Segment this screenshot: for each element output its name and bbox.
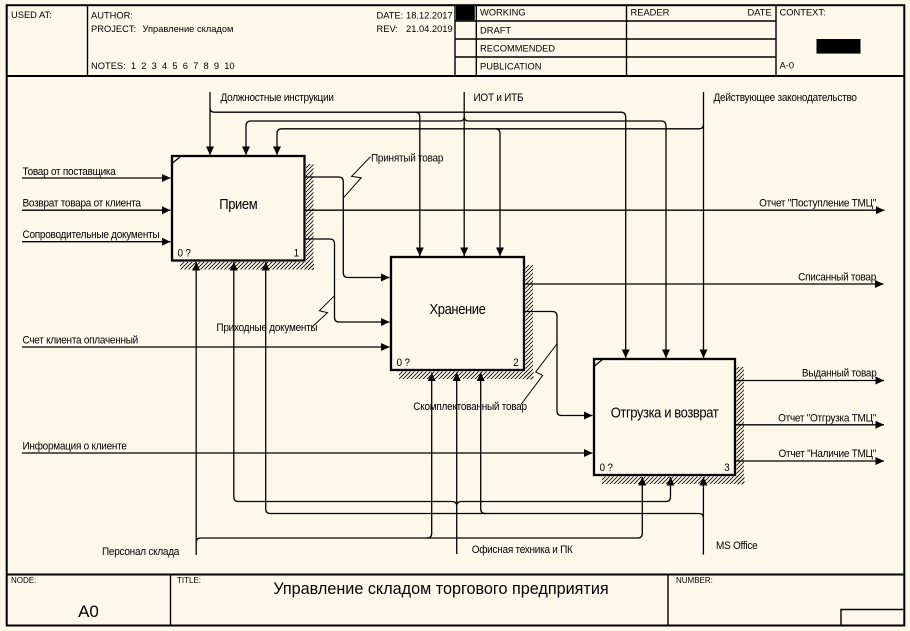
svg-text:RECOMMENDED: RECOMMENDED bbox=[480, 43, 555, 53]
svg-text:NODE:: NODE: bbox=[11, 576, 36, 585]
svg-text:A-0: A-0 bbox=[780, 60, 795, 70]
svg-text:Офисная техника и ПК: Офисная техника и ПК bbox=[472, 543, 573, 555]
svg-text:Персонал склада: Персонал склада bbox=[102, 546, 180, 557]
svg-text:DRAFT: DRAFT bbox=[480, 25, 511, 35]
svg-text:CONTEXT:: CONTEXT: bbox=[780, 8, 826, 18]
svg-text:Хранение: Хранение bbox=[430, 300, 487, 317]
svg-text:USED AT:: USED AT: bbox=[11, 10, 52, 20]
svg-text:Управление складом: Управление складом bbox=[143, 24, 234, 34]
svg-text:NOTES: 1 2 3 4 5 6 7 8: NOTES: 1 2 3 4 5 6 7 8 9 10 bbox=[91, 61, 235, 71]
svg-text:0 ?: 0 ? bbox=[600, 463, 614, 474]
svg-text:Отчет "Поступление ТМЦ": Отчет "Поступление ТМЦ" bbox=[759, 198, 876, 209]
svg-text:Управление складом торгового п: Управление складом торгового предприятия bbox=[273, 580, 608, 598]
svg-text:Прием: Прием bbox=[219, 195, 257, 212]
svg-text:Отчет "Отгрузка ТМЦ": Отчет "Отгрузка ТМЦ" bbox=[778, 413, 876, 424]
svg-text:DATE:: DATE: bbox=[377, 10, 404, 20]
svg-text:NUMBER:: NUMBER: bbox=[676, 576, 713, 585]
svg-text:Списанный товар: Списанный товар bbox=[798, 272, 876, 283]
svg-text:A0: A0 bbox=[78, 602, 99, 621]
svg-text:Сопроводительные документы: Сопроводительные документы bbox=[23, 230, 160, 241]
svg-text:READER: READER bbox=[631, 8, 670, 18]
svg-text:MS Office: MS Office bbox=[716, 540, 758, 551]
svg-text:1: 1 bbox=[294, 248, 300, 259]
svg-text:TITLE:: TITLE: bbox=[177, 576, 201, 585]
svg-text:Товар от поставщика: Товар от поставщика bbox=[23, 167, 117, 178]
svg-text:Действующее законодательство: Действующее законодательство bbox=[714, 93, 858, 104]
svg-text:0 ?: 0 ? bbox=[178, 248, 192, 259]
svg-text:DATE: DATE bbox=[748, 8, 772, 18]
svg-text:ИОТ и ИТБ: ИОТ и ИТБ bbox=[474, 93, 524, 104]
svg-text:Принятый товар: Принятый товар bbox=[371, 153, 444, 164]
svg-text:0 ?: 0 ? bbox=[397, 358, 411, 369]
svg-text:Отгрузка и возврат: Отгрузка и возврат bbox=[611, 404, 720, 421]
svg-text:Выданный товар: Выданный товар bbox=[802, 368, 877, 379]
svg-text:21.04.2019: 21.04.2019 bbox=[406, 24, 453, 34]
svg-text:Счет клиента оплаченный: Счет клиента оплаченный bbox=[23, 335, 139, 346]
svg-text:AUTHOR:: AUTHOR: bbox=[91, 10, 133, 20]
svg-text:Информация о клиенте: Информация о клиенте bbox=[23, 440, 128, 452]
svg-text:Отчет "Наличие ТМЦ": Отчет "Наличие ТМЦ" bbox=[778, 449, 876, 460]
svg-text:Должностные инструкции: Должностные инструкции bbox=[221, 93, 335, 104]
svg-text:Возврат товара от клиента: Возврат товара от клиента bbox=[23, 198, 142, 209]
svg-text:Приходные документы: Приходные документы bbox=[216, 323, 317, 334]
svg-text:3: 3 bbox=[724, 463, 730, 474]
svg-text:Скомплектованный товар: Скомплектованный товар bbox=[413, 402, 527, 413]
svg-text:REV:: REV: bbox=[377, 24, 398, 34]
svg-text:2: 2 bbox=[513, 358, 519, 369]
svg-text:WORKING: WORKING bbox=[480, 8, 526, 18]
svg-text:PROJECT:: PROJECT: bbox=[91, 24, 136, 34]
svg-text:PUBLICATION: PUBLICATION bbox=[480, 61, 542, 71]
svg-text:18.12.2017: 18.12.2017 bbox=[406, 10, 453, 20]
